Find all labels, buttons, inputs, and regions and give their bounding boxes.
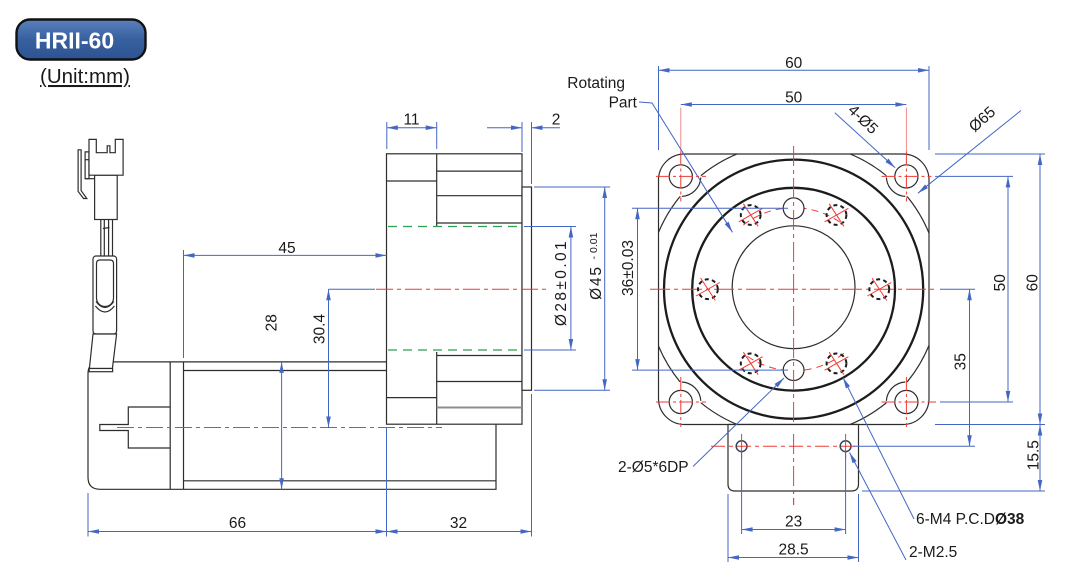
svg-text:4-Ø5: 4-Ø5 (844, 102, 881, 138)
svg-text:66: 66 (229, 515, 246, 532)
svg-text:2-M2.5: 2-M2.5 (909, 544, 957, 561)
svg-text:15.5: 15.5 (1026, 440, 1043, 470)
svg-text:2-Ø5*6DP: 2-Ø5*6DP (618, 459, 689, 476)
svg-text:23: 23 (785, 514, 802, 531)
svg-text:11: 11 (403, 112, 419, 129)
svg-text:Ø28±0.01: Ø28±0.01 (553, 239, 570, 326)
svg-text:60: 60 (785, 55, 803, 72)
svg-text:Part: Part (609, 95, 638, 112)
svg-text:60: 60 (1025, 274, 1042, 292)
svg-text:28.5: 28.5 (779, 542, 809, 559)
svg-text:- 0.01: - 0.01 (588, 232, 600, 259)
svg-text:35: 35 (952, 353, 969, 370)
svg-text:45: 45 (278, 240, 295, 257)
svg-text:50: 50 (992, 274, 1009, 292)
svg-text:32: 32 (450, 515, 467, 532)
svg-text:28: 28 (264, 314, 281, 331)
svg-text:36±0.03: 36±0.03 (620, 240, 637, 296)
svg-text:(Unit:mm): (Unit:mm) (40, 65, 130, 88)
svg-text:Ø65: Ø65 (966, 104, 999, 136)
svg-text:6-M4 P.C.DØ38: 6-M4 P.C.DØ38 (916, 511, 1025, 528)
svg-text:Rotating: Rotating (567, 75, 625, 92)
svg-text:30.4: 30.4 (311, 314, 328, 345)
svg-text:Ø45: Ø45 (588, 265, 605, 300)
svg-text:HRII-60: HRII-60 (35, 28, 114, 54)
svg-text:50: 50 (785, 90, 803, 107)
svg-text:2: 2 (552, 112, 561, 129)
